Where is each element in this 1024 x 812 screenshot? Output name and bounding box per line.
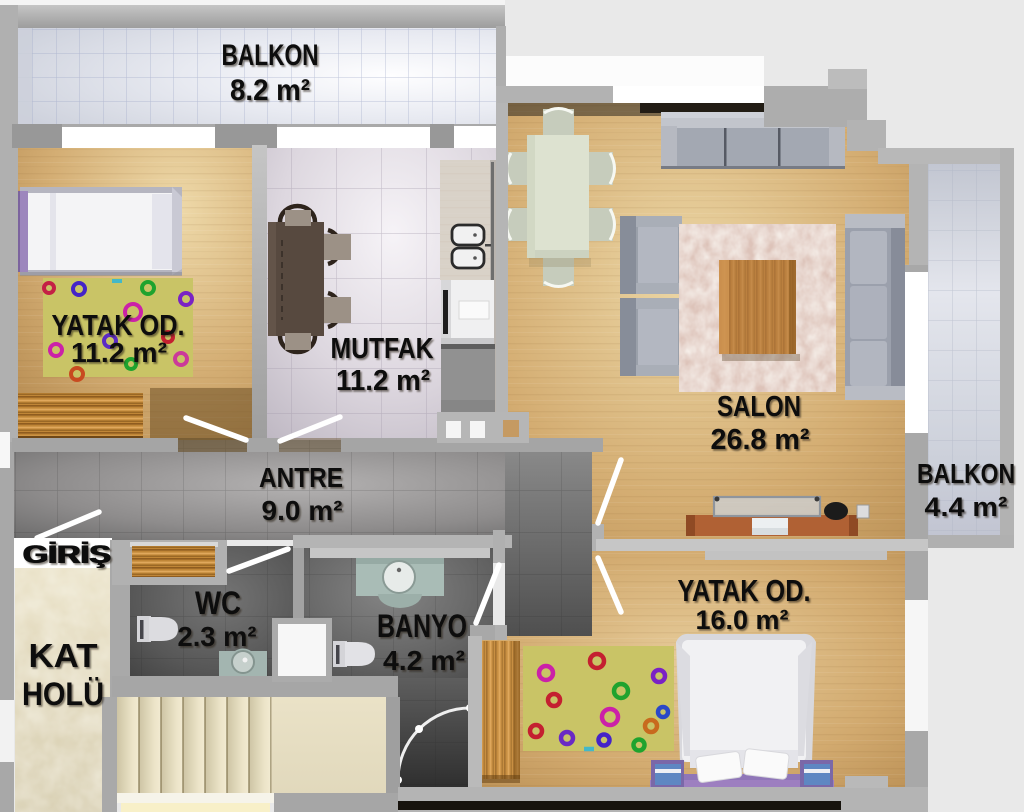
svg-text:16.0 m²: 16.0 m² <box>696 605 789 635</box>
svg-text:9.0 m²: 9.0 m² <box>262 495 343 526</box>
svg-text:BALKON: BALKON <box>917 458 1015 489</box>
svg-text:2.3 m²: 2.3 m² <box>178 621 257 652</box>
svg-text:11.2 m²: 11.2 m² <box>71 337 167 368</box>
svg-text:HOLÜ: HOLÜ <box>22 676 104 712</box>
svg-text:BALKON: BALKON <box>222 39 319 72</box>
svg-text:4.2 m²: 4.2 m² <box>383 645 465 676</box>
svg-text:ANTRE: ANTRE <box>259 462 343 493</box>
svg-text:MUTFAK: MUTFAK <box>331 333 434 365</box>
svg-text:BANYO: BANYO <box>377 608 467 644</box>
svg-text:WC: WC <box>195 585 241 621</box>
svg-text:26.8 m²: 26.8 m² <box>711 424 810 456</box>
svg-text:SALON: SALON <box>717 391 801 423</box>
svg-text:11.2 m²: 11.2 m² <box>336 365 430 397</box>
svg-text:KAT: KAT <box>29 637 98 674</box>
svg-text:4.4 m²: 4.4 m² <box>925 492 1008 522</box>
svg-text:8.2 m²: 8.2 m² <box>230 74 310 107</box>
svg-text:YATAK OD.: YATAK OD. <box>678 573 811 608</box>
svg-text:GİRİŞ: GİRİŞ <box>22 541 110 569</box>
